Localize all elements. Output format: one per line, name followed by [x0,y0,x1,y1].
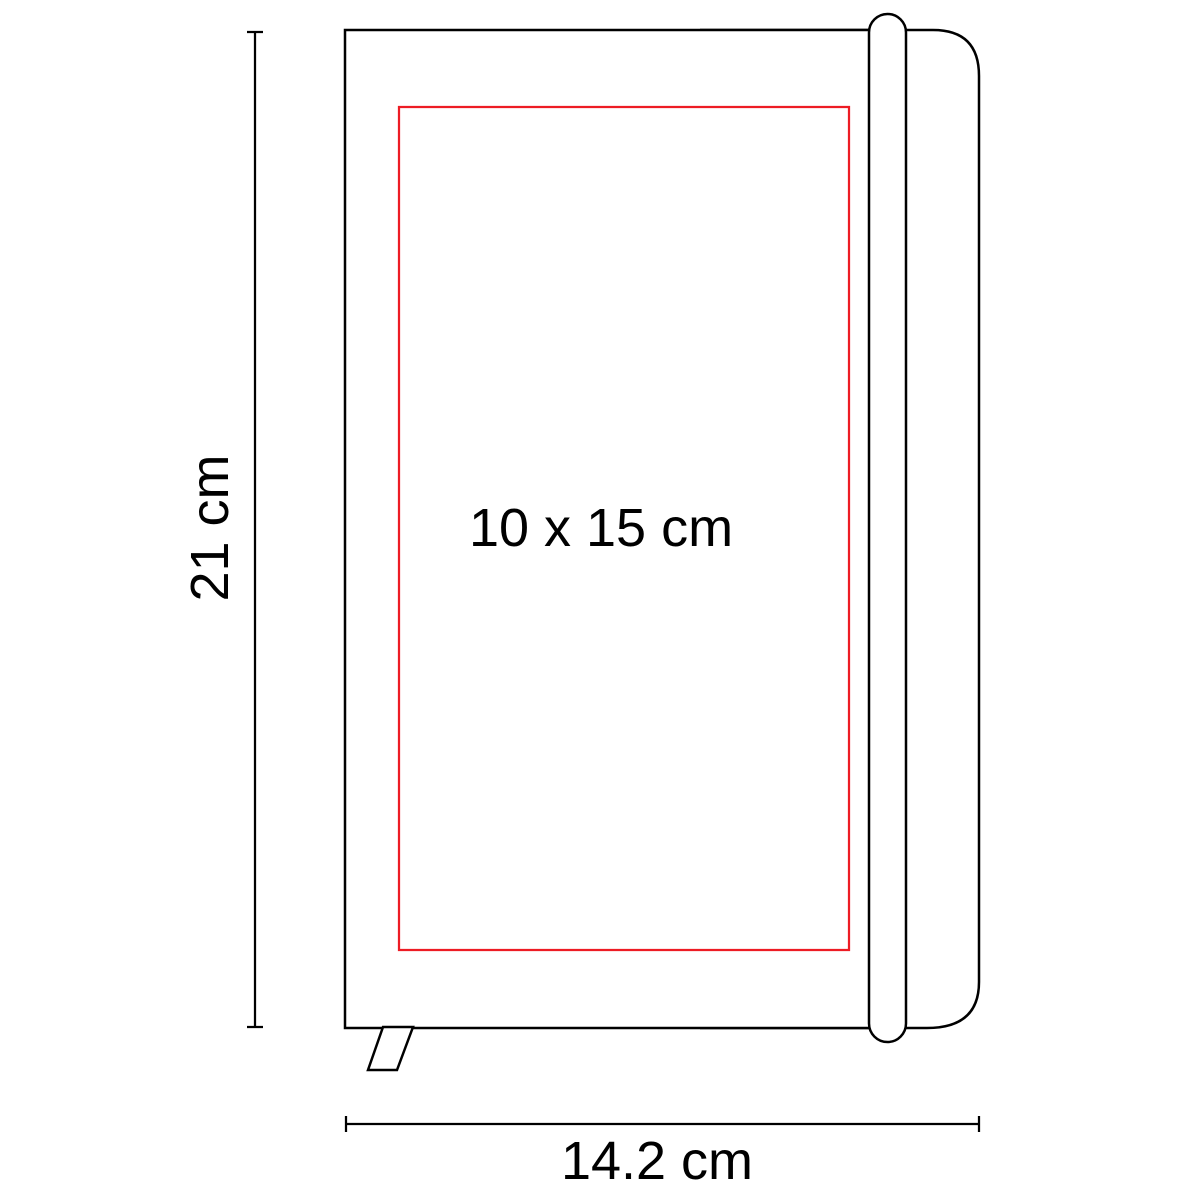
height-dimension-line [247,32,263,1027]
width-dimension-line [346,1116,979,1132]
height-dimension-label: 21 cm [183,454,237,601]
elastic-band [869,14,906,1042]
width-dimension-label: 14.2 cm [561,1134,753,1188]
print-area-label: 10 x 15 cm [469,501,733,555]
bookmark-ribbon [368,1027,413,1070]
dimension-diagram: 21 cm 10 x 15 cm 14.2 cm [0,0,1200,1200]
